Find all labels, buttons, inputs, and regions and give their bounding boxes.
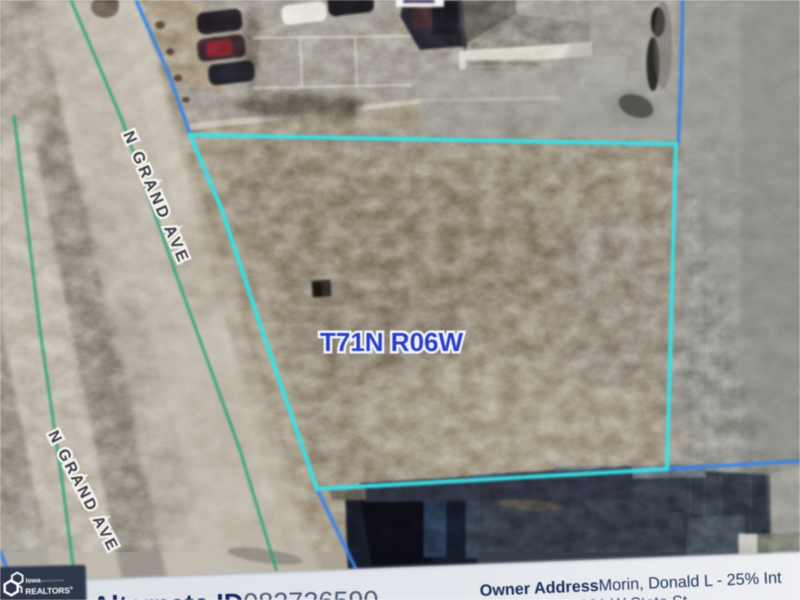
svg-text:REALTORS®: REALTORS® — [25, 585, 74, 597]
svg-text:T71N R06W: T71N R06W — [320, 327, 463, 357]
svg-text:Iowa: Iowa — [25, 577, 41, 584]
svg-text:ASSOCIATION OF: ASSOCIATION OF — [40, 578, 64, 583]
